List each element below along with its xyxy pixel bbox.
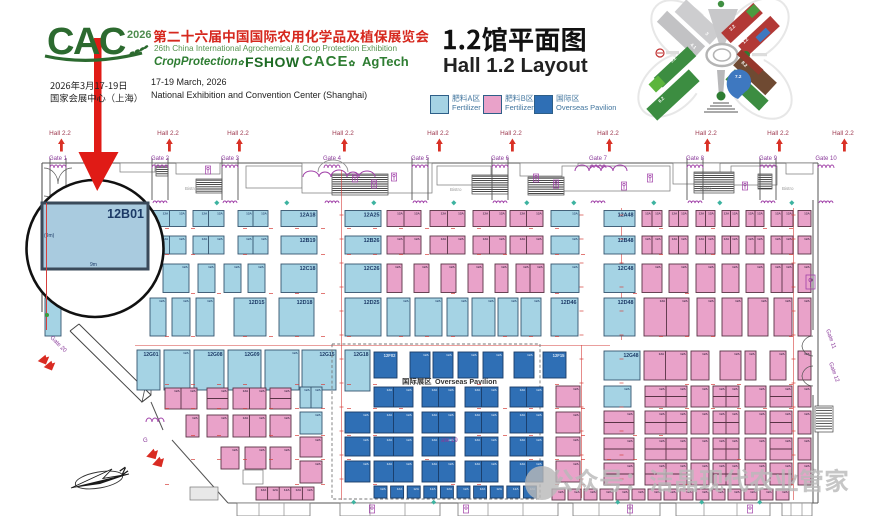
svg-text:12A: 12A xyxy=(724,237,730,241)
svg-text:12A: 12A xyxy=(682,299,688,303)
svg-text:12A: 12A xyxy=(757,237,763,241)
svg-text:12A: 12A xyxy=(655,211,661,215)
svg-text:12A: 12A xyxy=(192,416,198,420)
svg-text:12A: 12A xyxy=(659,352,665,356)
svg-text:12A: 12A xyxy=(363,413,369,417)
svg-text:12A: 12A xyxy=(432,413,438,417)
svg-text:12A: 12A xyxy=(461,299,467,303)
svg-text:12A: 12A xyxy=(785,387,791,391)
svg-text:12A: 12A xyxy=(304,388,310,392)
svg-text:12A: 12A xyxy=(775,211,781,215)
svg-text:12A: 12A xyxy=(387,388,393,392)
svg-text:12F02: 12F02 xyxy=(384,353,397,358)
svg-text:12A: 12A xyxy=(397,487,403,491)
svg-text:12A: 12A xyxy=(804,412,810,416)
svg-text:12A: 12A xyxy=(627,439,633,443)
svg-text:12A: 12A xyxy=(435,299,441,303)
svg-text:12A: 12A xyxy=(536,438,542,442)
svg-text:12A: 12A xyxy=(414,211,420,215)
svg-text:12A: 12A xyxy=(449,265,455,269)
svg-text:12A: 12A xyxy=(757,265,763,269)
svg-text:12A: 12A xyxy=(403,299,409,303)
svg-text:12A: 12A xyxy=(536,388,542,392)
svg-text:12A: 12A xyxy=(446,353,452,357)
svg-text:12A: 12A xyxy=(708,299,714,303)
svg-text:12B19: 12B19 xyxy=(300,238,316,244)
svg-text:12A: 12A xyxy=(702,387,708,391)
svg-text:12A: 12A xyxy=(476,265,482,269)
svg-text:12A: 12A xyxy=(680,464,686,468)
svg-text:12G18: 12G18 xyxy=(353,352,368,358)
svg-text:12C26: 12C26 xyxy=(364,266,380,272)
svg-text:12A: 12A xyxy=(573,387,579,391)
svg-text:12A: 12A xyxy=(719,464,725,468)
svg-text:12A: 12A xyxy=(786,265,792,269)
svg-text:12A: 12A xyxy=(261,211,267,215)
svg-text:12A: 12A xyxy=(708,265,714,269)
svg-text:12A: 12A xyxy=(681,211,687,215)
svg-text:12A: 12A xyxy=(536,462,542,466)
svg-text:12A: 12A xyxy=(243,389,249,393)
svg-text:12A: 12A xyxy=(387,462,393,466)
svg-text:12A: 12A xyxy=(734,352,740,356)
svg-text:12A: 12A xyxy=(757,211,763,215)
svg-text:12A: 12A xyxy=(292,351,298,355)
svg-text:12A: 12A xyxy=(680,387,686,391)
svg-text:12A: 12A xyxy=(724,211,730,215)
svg-text:12A: 12A xyxy=(702,464,708,468)
svg-text:12A: 12A xyxy=(397,237,403,241)
svg-text:12B01: 12B01 xyxy=(107,207,144,221)
svg-text:12A: 12A xyxy=(655,237,661,241)
svg-text:12A: 12A xyxy=(179,237,185,241)
svg-text:12A: 12A xyxy=(190,389,196,393)
svg-text:12A: 12A xyxy=(447,487,453,491)
svg-text:Gate 12: Gate 12 xyxy=(827,362,840,383)
svg-text:12F15: 12F15 xyxy=(553,353,566,358)
svg-text:12A: 12A xyxy=(284,389,290,393)
svg-text:12A: 12A xyxy=(202,211,208,215)
svg-text:12A: 12A xyxy=(624,387,630,391)
svg-text:12A: 12A xyxy=(573,462,579,466)
svg-text:12A: 12A xyxy=(363,438,369,442)
svg-text:12A: 12A xyxy=(491,462,497,466)
svg-text:12A: 12A xyxy=(471,353,477,357)
svg-text:12A: 12A xyxy=(775,237,781,241)
svg-text:12A: 12A xyxy=(759,387,765,391)
svg-text:12A: 12A xyxy=(732,265,738,269)
svg-text:12A: 12A xyxy=(475,462,481,466)
svg-text:12A: 12A xyxy=(520,388,526,392)
svg-text:Gate 20: Gate 20 xyxy=(49,335,68,354)
svg-text:12A: 12A xyxy=(719,439,725,443)
svg-text:(9m): (9m) xyxy=(44,233,55,239)
svg-text:12G09: 12G09 xyxy=(244,352,259,358)
svg-text:12A: 12A xyxy=(182,265,188,269)
svg-text:12C18: 12C18 xyxy=(300,266,316,272)
svg-text:12A: 12A xyxy=(659,464,665,468)
svg-text:12A: 12A xyxy=(501,265,507,269)
svg-text:12A: 12A xyxy=(759,439,765,443)
svg-text:12A: 12A xyxy=(207,299,213,303)
svg-text:12A: 12A xyxy=(284,488,290,492)
svg-text:12A: 12A xyxy=(483,237,489,241)
svg-text:12D18: 12D18 xyxy=(297,300,313,306)
svg-text:Gate 11: Gate 11 xyxy=(824,329,837,350)
svg-text:12A: 12A xyxy=(527,353,533,357)
svg-text:12A: 12A xyxy=(785,412,791,416)
svg-text:12A: 12A xyxy=(208,265,214,269)
svg-text:12A: 12A xyxy=(414,237,420,241)
svg-text:12A: 12A xyxy=(732,237,738,241)
svg-text:12A: 12A xyxy=(702,412,708,416)
svg-text:12A: 12A xyxy=(627,464,633,468)
svg-text:12A: 12A xyxy=(448,413,454,417)
svg-text:12A: 12A xyxy=(759,412,765,416)
svg-text:12A: 12A xyxy=(804,464,810,468)
svg-text:12A: 12A xyxy=(785,299,791,303)
svg-text:12A: 12A xyxy=(406,413,412,417)
svg-text:12A: 12A xyxy=(732,211,738,215)
svg-text:12A: 12A xyxy=(804,265,810,269)
svg-text:12A: 12A xyxy=(217,211,223,215)
svg-text:12A: 12A xyxy=(627,412,633,416)
svg-text:12A: 12A xyxy=(441,237,447,241)
svg-text:12A: 12A xyxy=(232,448,238,452)
svg-text:12A: 12A xyxy=(430,487,436,491)
svg-text:12A: 12A xyxy=(708,211,714,215)
svg-text:12A: 12A xyxy=(246,237,252,241)
svg-text:12A: 12A xyxy=(397,211,403,215)
svg-text:12A: 12A xyxy=(680,352,686,356)
svg-text:12A: 12A xyxy=(261,488,267,492)
svg-text:12A: 12A xyxy=(363,462,369,466)
svg-text:12A: 12A xyxy=(448,388,454,392)
svg-text:12A: 12A xyxy=(475,413,481,417)
svg-text:12A: 12A xyxy=(702,439,708,443)
svg-text:12A: 12A xyxy=(284,416,290,420)
svg-text:12A: 12A xyxy=(259,416,265,420)
svg-text:12A: 12A xyxy=(217,237,223,241)
svg-text:12A: 12A xyxy=(463,487,469,491)
svg-text:12A: 12A xyxy=(483,211,489,215)
svg-text:12A: 12A xyxy=(748,211,754,215)
svg-text:12A: 12A xyxy=(732,439,738,443)
svg-text:12A: 12A xyxy=(659,412,665,416)
svg-text:12A: 12A xyxy=(748,237,754,241)
svg-text:9m: 9m xyxy=(90,262,97,268)
svg-text:12A: 12A xyxy=(732,412,738,416)
svg-text:12A: 12A xyxy=(422,265,428,269)
svg-text:12A: 12A xyxy=(804,211,810,215)
svg-text:12A: 12A xyxy=(259,448,265,452)
svg-text:12A: 12A xyxy=(638,490,644,494)
svg-text:12A: 12A xyxy=(732,464,738,468)
svg-text:12A: 12A xyxy=(804,237,810,241)
svg-text:12B26: 12B26 xyxy=(364,238,380,244)
svg-text:12A: 12A xyxy=(496,353,502,357)
svg-text:12A: 12A xyxy=(672,211,678,215)
svg-text:12G01: 12G01 xyxy=(143,352,158,358)
svg-text:12A: 12A xyxy=(458,211,464,215)
svg-text:12A: 12A xyxy=(387,413,393,417)
svg-text:12A: 12A xyxy=(475,438,481,442)
svg-text:12A: 12A xyxy=(719,412,725,416)
svg-text:12A: 12A xyxy=(622,490,628,494)
svg-text:12A: 12A xyxy=(261,237,267,241)
svg-text:12A: 12A xyxy=(536,413,542,417)
svg-text:12A: 12A xyxy=(183,351,189,355)
svg-text:12A: 12A xyxy=(441,211,447,215)
svg-text:12A: 12A xyxy=(534,299,540,303)
svg-text:12A: 12A xyxy=(406,462,412,466)
svg-text:12A: 12A xyxy=(779,352,785,356)
svg-text:12A: 12A xyxy=(284,448,290,452)
svg-text:12A: 12A xyxy=(491,388,497,392)
svg-text:12A: 12A xyxy=(681,237,687,241)
svg-text:12A: 12A xyxy=(655,265,661,269)
svg-text:12A: 12A xyxy=(680,412,686,416)
svg-text:12A: 12A xyxy=(572,265,578,269)
svg-text:12A: 12A xyxy=(572,237,578,241)
svg-text:12A: 12A xyxy=(659,439,665,443)
svg-text:12C48: 12C48 xyxy=(618,266,634,272)
svg-text:12A: 12A xyxy=(258,265,264,269)
svg-text:12A: 12A xyxy=(221,389,227,393)
svg-text:12A: 12A xyxy=(179,211,185,215)
svg-text:12A: 12A xyxy=(520,438,526,442)
svg-text:12A: 12A xyxy=(432,462,438,466)
svg-text:12A: 12A xyxy=(680,439,686,443)
svg-text:12A: 12A xyxy=(448,462,454,466)
svg-text:12A: 12A xyxy=(735,299,741,303)
svg-text:12A: 12A xyxy=(406,388,412,392)
svg-text:12A: 12A xyxy=(458,237,464,241)
svg-text:12G48: 12G48 xyxy=(623,353,638,359)
svg-text:Overseas Pavilion: Overseas Pavilion xyxy=(435,377,497,386)
svg-text:12A: 12A xyxy=(163,211,169,215)
svg-text:12A: 12A xyxy=(520,211,526,215)
svg-text:12A48: 12A48 xyxy=(618,213,634,219)
svg-text:12A: 12A xyxy=(499,237,505,241)
svg-text:12A: 12A xyxy=(387,438,393,442)
svg-text:12A: 12A xyxy=(558,490,564,494)
svg-text:12A: 12A xyxy=(785,439,791,443)
svg-text:12A: 12A xyxy=(315,413,321,417)
svg-text:12A18: 12A18 xyxy=(300,213,316,219)
svg-text:12A: 12A xyxy=(749,352,755,356)
svg-text:12A: 12A xyxy=(511,299,517,303)
svg-text:12A: 12A xyxy=(315,388,321,392)
svg-text:12A: 12A xyxy=(221,416,227,420)
svg-text:12A: 12A xyxy=(496,487,502,491)
svg-text:12A: 12A xyxy=(672,237,678,241)
svg-text:12A: 12A xyxy=(759,464,765,468)
svg-text:12A: 12A xyxy=(315,462,321,466)
svg-text:12A: 12A xyxy=(259,389,265,393)
svg-text:12A: 12A xyxy=(202,237,208,241)
svg-text:12A: 12A xyxy=(307,488,313,492)
svg-text:12A: 12A xyxy=(804,387,810,391)
svg-text:12A: 12A xyxy=(660,299,666,303)
svg-text:12A: 12A xyxy=(785,464,791,468)
svg-text:12G08: 12G08 xyxy=(207,352,222,358)
svg-text:12A: 12A xyxy=(243,416,249,420)
svg-text:12A: 12A xyxy=(488,299,494,303)
svg-text:12A: 12A xyxy=(572,211,578,215)
svg-text:12A: 12A xyxy=(537,265,543,269)
svg-text:12A25: 12A25 xyxy=(364,213,380,219)
svg-text:12A: 12A xyxy=(708,237,714,241)
svg-text:12A: 12A xyxy=(315,438,321,442)
svg-text:12A: 12A xyxy=(520,237,526,241)
svg-text:12A: 12A xyxy=(573,413,579,417)
svg-text:12A: 12A xyxy=(413,487,419,491)
svg-text:12D48: 12D48 xyxy=(618,300,634,306)
svg-text:12D15: 12D15 xyxy=(249,300,265,306)
svg-text:12A: 12A xyxy=(573,438,579,442)
svg-text:12A: 12A xyxy=(536,211,542,215)
svg-text:12A: 12A xyxy=(804,299,810,303)
svg-text:12A: 12A xyxy=(475,388,481,392)
svg-text:12A: 12A xyxy=(380,487,386,491)
svg-text:12A: 12A xyxy=(699,211,705,215)
svg-text:12A: 12A xyxy=(775,265,781,269)
svg-text:12A: 12A xyxy=(480,487,486,491)
svg-text:12D25: 12D25 xyxy=(364,300,380,306)
svg-text:12A: 12A xyxy=(491,438,497,442)
svg-text:12A: 12A xyxy=(645,211,651,215)
svg-text:12A: 12A xyxy=(432,388,438,392)
svg-text:12A: 12A xyxy=(719,387,725,391)
svg-text:12A: 12A xyxy=(645,237,651,241)
svg-text:12A: 12A xyxy=(406,438,412,442)
svg-text:12A: 12A xyxy=(432,438,438,442)
svg-text:12A: 12A xyxy=(732,387,738,391)
svg-text:12D46: 12D46 xyxy=(561,300,577,306)
svg-text:12A: 12A xyxy=(681,265,687,269)
svg-text:12A: 12A xyxy=(536,237,542,241)
svg-text:12A: 12A xyxy=(499,211,505,215)
svg-text:12A: 12A xyxy=(423,353,429,357)
svg-text:12A: 12A xyxy=(520,413,526,417)
svg-text:12A: 12A xyxy=(395,265,401,269)
svg-text:12A: 12A xyxy=(699,237,705,241)
svg-text:12A: 12A xyxy=(659,387,665,391)
svg-text:12A: 12A xyxy=(513,487,519,491)
svg-text:12A: 12A xyxy=(734,490,740,494)
svg-text:12A: 12A xyxy=(702,352,708,356)
svg-text:12A: 12A xyxy=(272,488,278,492)
svg-text:12A: 12A xyxy=(761,299,767,303)
svg-text:12A: 12A xyxy=(234,265,240,269)
svg-text:12A: 12A xyxy=(491,413,497,417)
svg-text:12A: 12A xyxy=(246,211,252,215)
svg-text:12A: 12A xyxy=(159,299,165,303)
svg-text:12A: 12A xyxy=(804,439,810,443)
svg-text:12A: 12A xyxy=(174,389,180,393)
svg-text:12A: 12A xyxy=(520,462,526,466)
svg-text:12A: 12A xyxy=(523,265,529,269)
svg-text:12A: 12A xyxy=(296,488,302,492)
svg-text:12A: 12A xyxy=(183,299,189,303)
